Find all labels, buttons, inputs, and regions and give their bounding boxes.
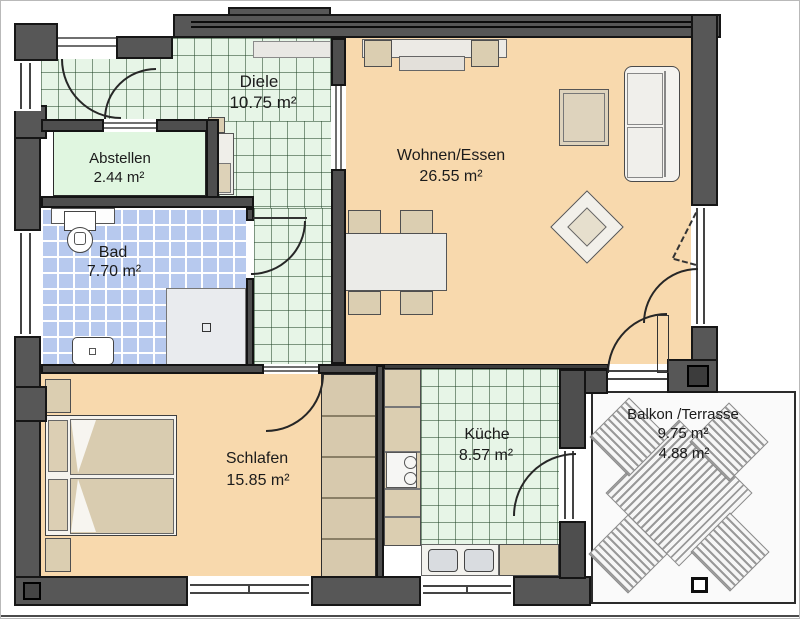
- window-diele-left-pane-1: [20, 63, 22, 109]
- wall-top-lintel-line-2: [191, 26, 711, 28]
- coffee-table-inner: [563, 93, 605, 142]
- stove-burner-2: [404, 472, 417, 485]
- counter-division-3: [385, 488, 420, 490]
- room-area-diele: 10.75 m²: [229, 94, 296, 111]
- wall-abstellen-top-left: [41, 119, 104, 132]
- passage-frame-2: [340, 86, 342, 169]
- wall-kueche-divider: [376, 365, 384, 578]
- sink-drain: [89, 348, 96, 355]
- wardrobe-divider-4: [322, 538, 375, 540]
- dining-chair-2: [400, 210, 433, 234]
- room-area-balkon-net: 4.88 m²: [659, 446, 710, 461]
- room-area-schlafen: 15.85 m²: [226, 473, 289, 489]
- image-bottom-line: [1, 615, 800, 617]
- window-bad-left-pane-1: [20, 233, 22, 334]
- wall-right-upper: [691, 14, 718, 206]
- room-area-abstellen: 2.44 m²: [94, 170, 145, 185]
- wall-corner-top-left: [14, 23, 58, 61]
- toilet-bowl-inner: [74, 232, 86, 245]
- wall-diele-wohnen-upper: [331, 38, 346, 86]
- doormat: [253, 41, 331, 58]
- door-south-frame-2: [608, 378, 667, 380]
- room-label-bad: Bad: [99, 245, 127, 261]
- window-kueche-mullion: [466, 585, 468, 594]
- door-abstellen-frame-2: [104, 127, 156, 129]
- wall-left-lower: [14, 336, 41, 606]
- shower-drain: [202, 323, 211, 332]
- wall-diele-wohnen-lower: [331, 169, 346, 364]
- stove-burner-1: [404, 456, 417, 469]
- door-schlafen-frame-1: [264, 366, 318, 368]
- wall-schlafen-top-left: [41, 364, 264, 374]
- door-opening-abstellen: [104, 119, 156, 132]
- window-bad-left-pane-2: [29, 233, 31, 334]
- wardrobe-divider-3: [322, 497, 375, 499]
- kitchen-sink-basin-1: [428, 549, 458, 572]
- pillow-2: [48, 479, 68, 531]
- room-label-kueche: Küche: [464, 427, 509, 443]
- window-diele-left: [14, 61, 41, 111]
- room-label-diele: Diele: [240, 73, 279, 90]
- window-east-pane-2: [703, 208, 705, 324]
- wall-top-left-lower: [116, 36, 173, 59]
- wardrobe-divider-1: [322, 415, 375, 417]
- wardrobe-divider-2: [322, 456, 375, 458]
- window-schlafen-mullion: [248, 584, 250, 594]
- dining-chair-3: [348, 291, 381, 315]
- wall-corner-bottom-left-detail: [23, 582, 41, 600]
- door-abstellen-frame-1: [104, 122, 156, 124]
- floor-plan: Diele 10.75 m² Abstellen 2.44 m² Bad 7.7…: [0, 0, 800, 619]
- kitchen-counter-bottom-right: [499, 544, 559, 576]
- entrance-opening: [58, 23, 116, 59]
- passage-diele-wohnen: [331, 86, 346, 169]
- passage-frame-1: [335, 86, 337, 169]
- window-diele-left-pane-2: [29, 63, 31, 109]
- counter-division-4: [385, 516, 420, 518]
- sofa-back-line: [664, 71, 666, 177]
- diele-floor-mid: [219, 121, 331, 208]
- wall-kueche-right-bottom: [559, 521, 586, 579]
- wall-schlafen-top-right: [318, 364, 384, 374]
- door-leaf-bad: [253, 217, 307, 219]
- tv-board-box-left: [364, 40, 392, 67]
- wall-abstellen-right: [206, 119, 219, 208]
- room-label-wohnen: Wohnen/Essen: [397, 148, 505, 164]
- nightstand-top: [45, 379, 71, 413]
- sofa-cushion-1: [627, 73, 663, 125]
- window-bad-left: [14, 231, 41, 336]
- room-label-balkon: Balkon /Terrasse: [627, 407, 739, 422]
- kitchen-sink-basin-2: [464, 549, 494, 572]
- pillow-1: [48, 420, 68, 472]
- counter-division-1: [385, 406, 420, 408]
- tv-unit: [399, 56, 465, 71]
- entrance-frame-line-1: [58, 37, 116, 39]
- dining-chair-4: [400, 291, 433, 315]
- nightstand-bottom: [45, 538, 71, 572]
- wall-corner-south-east-column: [687, 365, 709, 387]
- wall-top-lintel-line-1: [191, 21, 711, 23]
- wall-bad-right-upper: [246, 208, 254, 221]
- door-schlafen-frame-2: [264, 370, 318, 372]
- dining-table: [341, 233, 447, 291]
- room-area-bad: 7.70 m²: [87, 264, 141, 280]
- wardrobe: [321, 374, 376, 578]
- room-label-abstellen: Abstellen: [89, 151, 151, 166]
- room-area-kueche: 8.57 m²: [459, 448, 513, 464]
- room-area-wohnen: 26.55 m²: [419, 169, 482, 185]
- room-area-balkon-gross: 9.75 m²: [658, 426, 709, 441]
- wall-bottom-2: [311, 576, 421, 606]
- wall-bottom-3: [513, 576, 591, 606]
- wall-kueche-right-top-v: [559, 369, 586, 449]
- door-leaf-balkon-south: [657, 315, 669, 373]
- dining-chair-1: [348, 210, 381, 234]
- balcony-floor-drain: [691, 577, 708, 593]
- wall-left-pillar-b: [14, 386, 47, 422]
- wall-bad-right-lower: [246, 278, 254, 366]
- entrance-frame-line-2: [58, 45, 116, 47]
- sofa-cushion-2: [627, 127, 663, 178]
- tv-board-box-right: [471, 40, 499, 67]
- wall-bad-top: [41, 196, 254, 208]
- room-label-schlafen: Schlafen: [226, 451, 288, 467]
